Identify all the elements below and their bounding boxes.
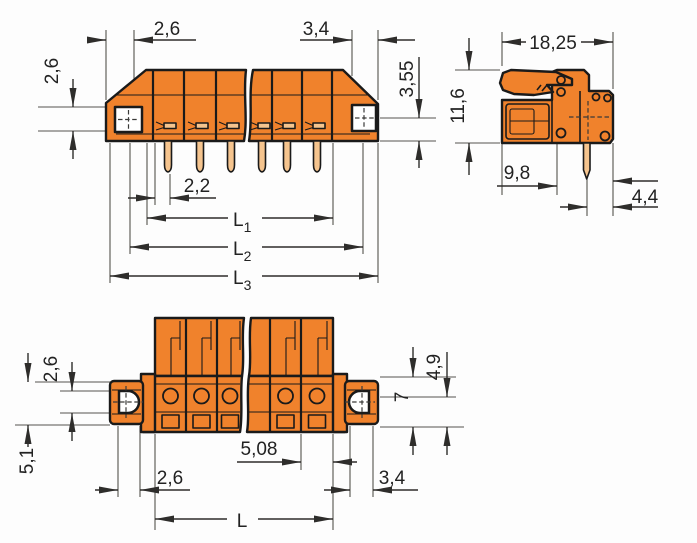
dim-label: 5,1 [17, 448, 38, 474]
dim-label: 2,6 [41, 356, 62, 382]
contact-hole [278, 389, 293, 404]
hole-circle [601, 132, 610, 141]
hole-circle [593, 94, 600, 101]
dim-label: 2,6 [157, 468, 183, 489]
dim-label: 2,6 [42, 58, 63, 84]
dim-label-subscript: 2 [244, 248, 252, 264]
side-solder-pin [584, 143, 591, 179]
dim-label-base: L [233, 210, 244, 231]
hole-circle [557, 76, 565, 84]
dim-label: 3,4 [379, 468, 406, 489]
dim-label-subscript: 3 [244, 277, 252, 293]
dim-label: 3,55 [397, 61, 418, 98]
contact-hole [163, 389, 178, 404]
solder-pin [259, 141, 266, 172]
dim-label: 9,8 [504, 163, 530, 184]
dim-label: 4,4 [632, 187, 659, 208]
hole-circle [557, 88, 565, 96]
hole-circle [604, 95, 611, 102]
bottom-upper-housing-right [249, 318, 333, 376]
contact-hole [194, 389, 209, 404]
technical-drawing-page: 2,6 3,4 2,6 3,55 2,2 L1 [0, 0, 697, 543]
dim-label: 4,9 [424, 354, 445, 380]
dim-label: 2,6 [154, 19, 180, 40]
solder-pin [228, 141, 235, 172]
dim-label-base: L [233, 239, 244, 260]
right-flange-hole [349, 391, 369, 413]
hole-circle [557, 129, 566, 138]
solder-pin [284, 141, 291, 172]
dim-label: 5,08 [241, 439, 278, 460]
solder-pin [314, 141, 321, 172]
dim-label: 3,4 [303, 19, 330, 40]
dim-label: 7 [392, 392, 413, 403]
solder-pin [165, 141, 172, 172]
contact-hole [310, 389, 325, 404]
dim-label: L [237, 511, 248, 532]
dim-label: 2,2 [184, 176, 210, 197]
dim-label: 11,6 [448, 88, 469, 124]
contact-hole [223, 389, 238, 404]
solder-pin [197, 141, 204, 172]
dim-label-subscript: 1 [244, 219, 252, 235]
dim-label-base: L [233, 268, 244, 289]
connector-dimension-drawing: 2,6 3,4 2,6 3,55 2,2 L1 [0, 0, 697, 543]
dim-label: 18,25 [529, 33, 577, 54]
